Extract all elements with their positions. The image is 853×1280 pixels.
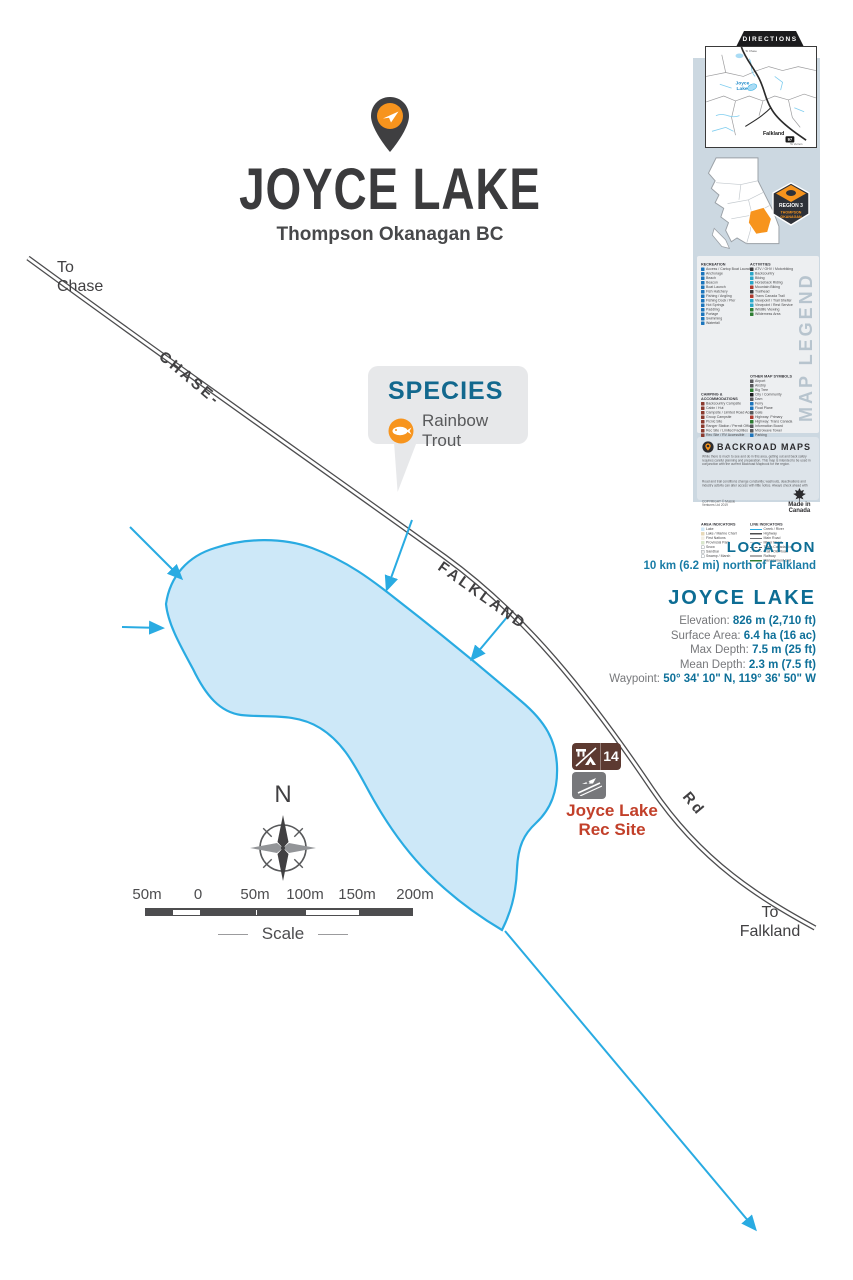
species-name: Rainbow Trout (422, 411, 528, 451)
legend-line-sample (750, 529, 762, 530)
picnic-tent-glyph (572, 745, 600, 769)
legend-section-header: CAMPING & ACCOMMODATIONS (701, 392, 750, 401)
legend-item-icon (701, 304, 705, 308)
legend-item-icon (750, 268, 754, 272)
legend-item-label: Waterfall (706, 321, 720, 326)
legend-item-icon (701, 268, 705, 272)
directions-tab: DIRECTIONS (736, 31, 804, 47)
legend-item-icon (750, 304, 754, 308)
legend-item-icon (701, 407, 705, 411)
legend-item-icon (750, 295, 754, 299)
legend-section: RECREATIONAccess / Cartop Boat LaunchAnc… (701, 262, 750, 326)
lake-stat-row: Mean Depth: 2.3 m (7.5 ft) (536, 658, 816, 673)
scale-tick-label: 0 (194, 886, 202, 903)
legend-item-icon (750, 389, 754, 393)
legend-section: OTHER MAP SYMBOLSAirportAirstripBig Tree… (750, 374, 795, 447)
legend-item-icon (701, 295, 705, 299)
map-legend: RECREATIONAccess / Cartop Boat LaunchAnc… (697, 256, 819, 433)
lake-stats: Elevation: 826 m (2,710 ft)Surface Area:… (536, 614, 816, 687)
legend-item-icon (750, 277, 754, 281)
legend-item: Wilderness Area (750, 312, 795, 317)
species-heading: SPECIES (388, 377, 528, 406)
region-badge: REGION 3 THOMPSON OKANAGAN (771, 182, 811, 226)
moose-silhouette-icon (786, 190, 796, 196)
page-title: JOYCE LAKE (135, 156, 645, 223)
scale-bar: 50m050m100m150m200m Scale (138, 886, 428, 950)
inset-lake-label-2: Lake (736, 86, 747, 92)
stat-value: 6.4 ha (16 ac) (744, 630, 816, 642)
legend-item-icon (750, 380, 754, 384)
species-callout: SPECIES Rainbow Trout (368, 366, 528, 444)
legend-section-header: AREA INDICATORS (701, 522, 750, 527)
boat-launch-icon (572, 772, 606, 799)
legend-item-label: Wilderness Area (755, 312, 780, 317)
legend-item-icon (750, 416, 754, 420)
inset-lake-label-1: Joyce (736, 80, 750, 86)
stat-label: Max Depth: (690, 644, 752, 656)
backroad-heading: BACKROAD MAPS (717, 442, 811, 452)
legend-line-sample (750, 533, 762, 535)
backroad-maps-block: BACKROAD MAPS While there is much to see… (697, 437, 819, 500)
legend-item-icon (701, 322, 705, 326)
legend-item-icon (750, 393, 754, 397)
location-value: 10 km (6.2 mi) north of Falkland (536, 560, 816, 572)
stat-value: 50° 34' 10" N, 119° 36' 50" W (663, 673, 816, 685)
lake-stat-row: Max Depth: 7.5 m (25 ft) (536, 643, 816, 658)
location-heading: LOCATION (536, 539, 816, 556)
legend-item-icon (701, 532, 705, 536)
badge-region-label: REGION 3 (779, 203, 803, 209)
directions-inset-map: Joyce Lake Falkland 97 To Chase To Verno… (705, 46, 817, 148)
legend-item-icon (750, 313, 754, 317)
badge-region-name-1: THOMPSON (781, 211, 802, 215)
backroad-logo-icon (702, 441, 714, 453)
stat-value: 7.5 m (25 ft) (752, 644, 816, 656)
legend-item-icon (750, 384, 754, 388)
legend-item-icon (750, 290, 754, 294)
legend-item-icon (750, 425, 754, 429)
page-subtitle: Thompson Okanagan BC (90, 224, 690, 246)
lake-stat-row: Surface Area: 6.4 ha (16 ac) (536, 629, 816, 644)
legend-section-header: LINE INDICATORS (750, 522, 795, 527)
campsite-count: 14 (600, 743, 621, 770)
legend-item-icon (701, 317, 705, 321)
info-block: LOCATION 10 km (6.2 mi) north of Falklan… (536, 539, 816, 687)
scale-labels: 50m050m100m150m200m (138, 886, 428, 904)
legend-item-icon (701, 420, 705, 424)
legend-item-icon (750, 429, 754, 433)
map-legend-watermark: MAP LEGEND (795, 259, 815, 431)
compass-north-label: N (274, 781, 291, 808)
legend-item-icon (750, 407, 754, 411)
legend-item: Waterfall (701, 321, 750, 326)
location-pin-icon (370, 96, 410, 154)
species-item: Rainbow Trout (388, 411, 528, 451)
legend-item-icon (750, 398, 754, 402)
legend-item-icon (750, 281, 754, 285)
lake-stats-heading: JOYCE LAKE (536, 587, 816, 610)
fish-icon (388, 418, 414, 444)
scale-tick-label: 150m (338, 886, 376, 903)
legend-item-icon (750, 402, 754, 406)
legend-item-icon (701, 277, 705, 281)
inset-lake-blob (736, 53, 744, 58)
legend-item-icon (750, 299, 754, 303)
inset-shield-number: 97 (788, 137, 793, 142)
destination-south-label: To Falkland (715, 903, 825, 941)
campsite-icon: 14 (572, 743, 621, 770)
inflow-arrow-2 (122, 627, 162, 628)
legend-item-icon (750, 286, 754, 290)
legend-item-icon (701, 425, 705, 429)
legend-item-icon (701, 290, 705, 294)
inset-dest-bottom: To Vernon (790, 142, 803, 146)
legend-section: ACTIVITIESATV / OHV / MotorbikingBackcou… (750, 262, 795, 317)
inset-dest-top: To Chase (745, 49, 757, 53)
backroad-copyright: COPYRIGHT © Mussio Ventures Ltd 2019 (702, 500, 743, 507)
stat-value: 2.3 m (7.5 ft) (749, 659, 816, 671)
legend-section-header: ACTIVITIES (750, 262, 795, 267)
legend-item-icon (701, 272, 705, 276)
scale-track (145, 908, 413, 916)
legend-item-icon (701, 402, 705, 406)
road-label-falkland: FALKLAND (435, 558, 530, 633)
badge-region-name-2: OKANAGAN (780, 215, 802, 219)
legend-item-icon (701, 416, 705, 420)
legend-item-icon (701, 299, 705, 303)
inset-town-label: Falkland (763, 131, 784, 137)
outflow-arrow (505, 931, 755, 1229)
legend-item-icon (750, 308, 754, 312)
backroad-paragraph: While there is much to see and do in thi… (702, 455, 814, 466)
scale-tick-label: 50m (240, 886, 269, 903)
stat-label: Waypoint: (609, 673, 663, 685)
inflow-arrow-4 (472, 616, 508, 659)
backroad-paragraph: Road and trail conditions change constan… (702, 480, 814, 487)
destination-north-label: To Chase (57, 258, 103, 296)
stat-label: Surface Area: (671, 630, 744, 642)
legend-item-icon (701, 281, 705, 285)
scale-caption: Scale (138, 924, 428, 944)
map-poster: CHASE- FALKLAND Rd JOYCE LAKE Thompson O… (0, 0, 853, 1280)
maple-leaf-icon (792, 488, 807, 502)
road-label-rd: Rd (679, 789, 709, 820)
legend-item-icon (701, 528, 705, 532)
scale-tick-label: 100m (286, 886, 324, 903)
compass-rose: N (241, 780, 325, 892)
legend-item-icon (750, 272, 754, 276)
legend-item-icon (701, 429, 705, 433)
legend-section-header: OTHER MAP SYMBOLS (750, 374, 795, 379)
legend-item-icon (701, 308, 705, 312)
stat-label: Elevation: (679, 615, 733, 627)
rec-site-label: Joyce Lake Rec Site (542, 801, 682, 839)
lake-stat-row: Waypoint: 50° 34' 10" N, 119° 36' 50" W (536, 672, 816, 687)
stat-label: Mean Depth: (680, 659, 749, 671)
inflow-arrow-1 (130, 527, 181, 578)
legend-item-icon (701, 411, 705, 415)
made-in-canada: Made in Canada (785, 488, 814, 514)
backroad-paragraphs: While there is much to see and do in thi… (702, 453, 814, 487)
legend-item-icon (701, 313, 705, 317)
scale-tick-label: 50m (132, 886, 161, 903)
inflow-arrow-3 (387, 520, 412, 589)
road-label-chase: CHASE- (155, 348, 224, 410)
lake-stat-row: Elevation: 826 m (2,710 ft) (536, 614, 816, 629)
legend-item-icon (701, 286, 705, 290)
scale-tick-label: 200m (396, 886, 434, 903)
stat-value: 826 m (2,710 ft) (733, 615, 816, 627)
legend-section-header: RECREATION (701, 262, 750, 267)
legend-item-icon (750, 411, 754, 415)
legend-item-icon (750, 420, 754, 424)
